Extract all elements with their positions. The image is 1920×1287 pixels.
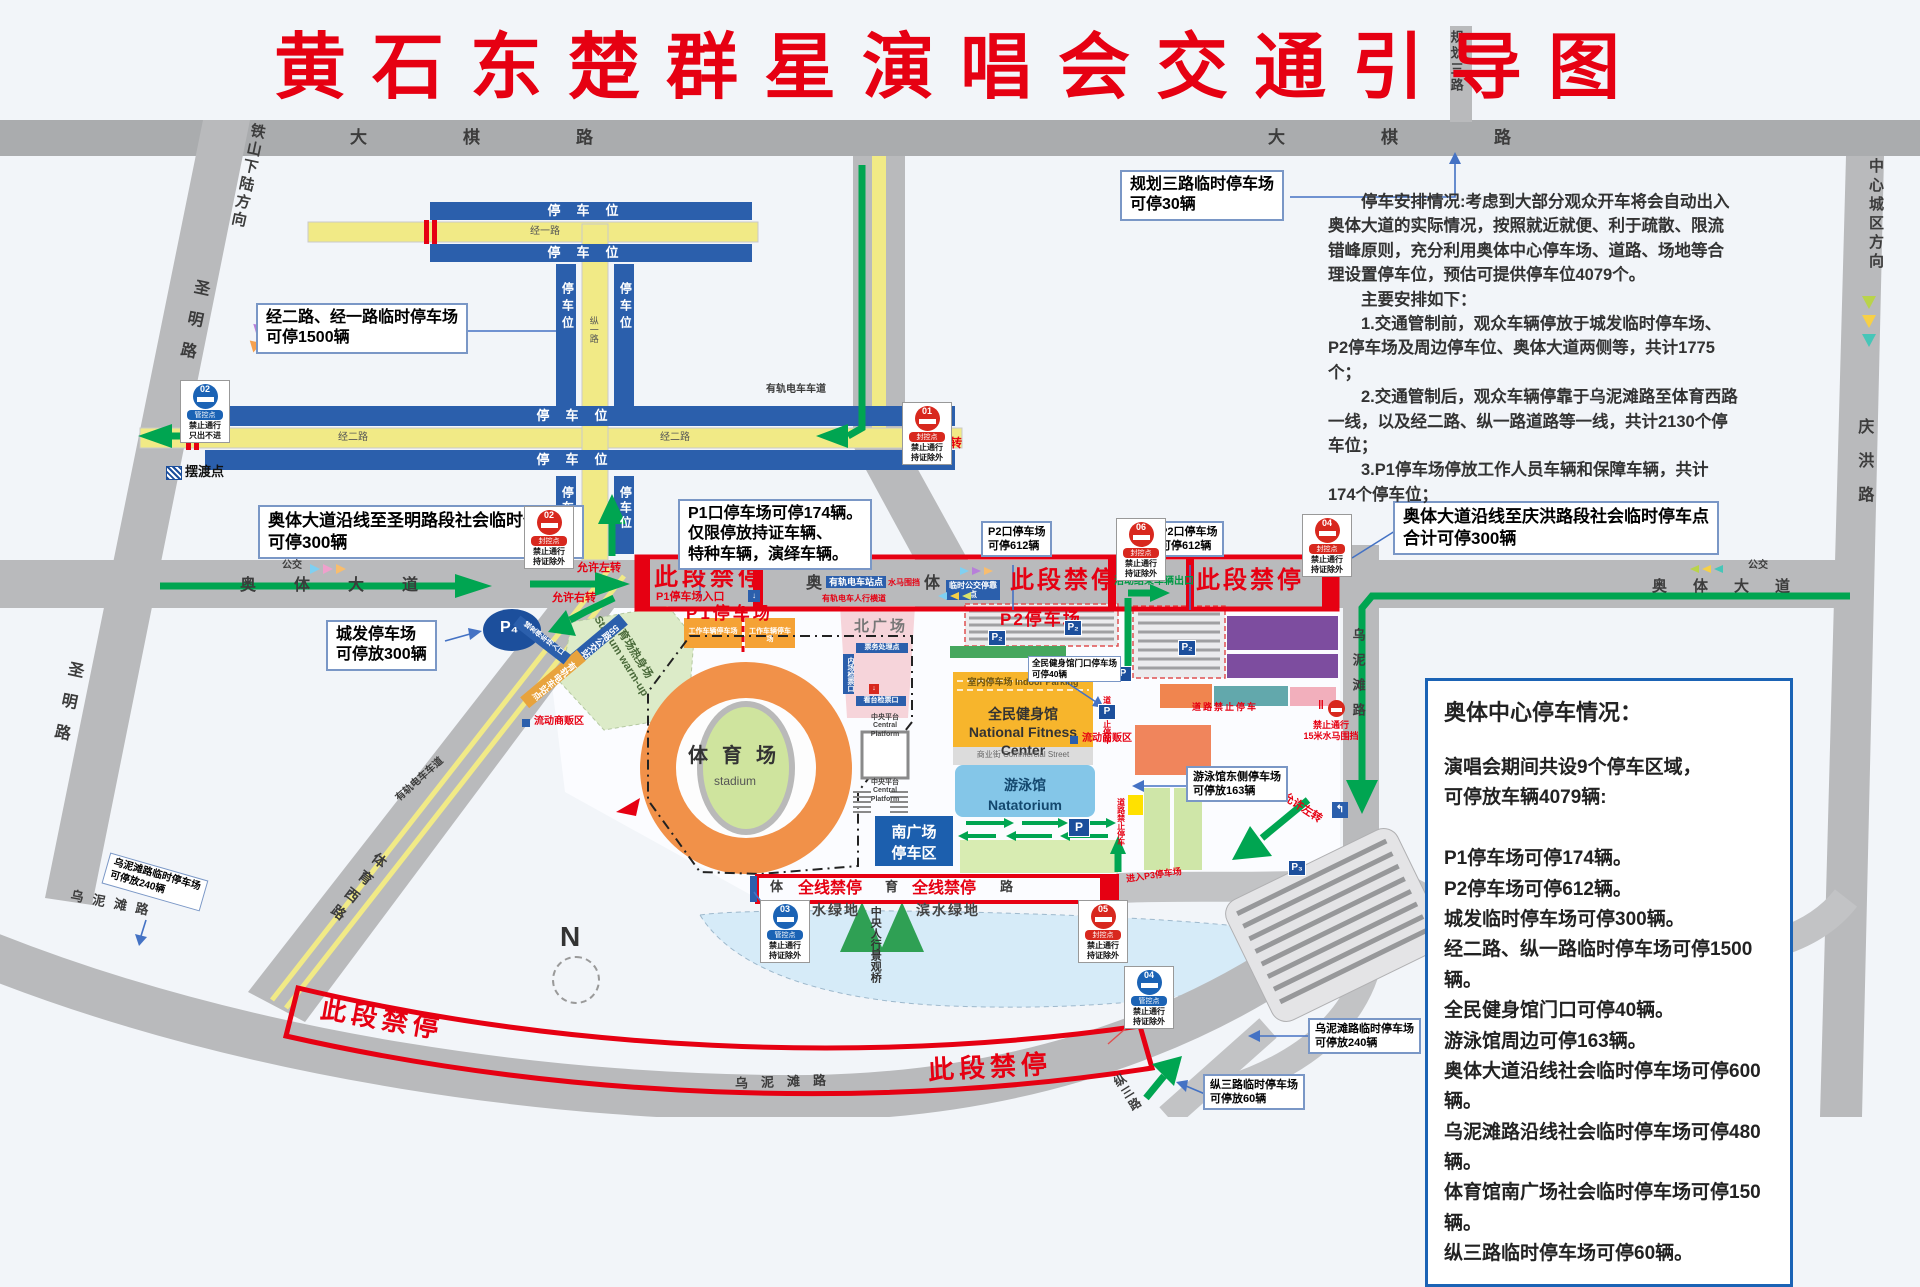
parking-bar-label-6: 停车位 xyxy=(205,452,955,468)
p2-badge-3: P₂ xyxy=(1178,640,1196,656)
p2-badge-2: P₂ xyxy=(1064,620,1082,636)
ticket-tag-1: 票务处理点 xyxy=(856,643,908,653)
road-daqi xyxy=(0,120,1920,156)
no-entry-icon: 06 xyxy=(1129,522,1154,547)
green-block-1 xyxy=(1144,788,1170,870)
checkpoint-sign-02-blue: 02 管控点 禁止通行 只出不进 xyxy=(180,380,230,443)
water-barrier-label: 水马围挡 xyxy=(888,578,920,588)
no-entry-icon: 04 xyxy=(1137,970,1162,995)
parking-summary-body: 演唱会期间共设9个停车区域， 可停放车辆4079辆: P1停车场可停174辆。 … xyxy=(1444,753,1774,1270)
parking-bar-label-1: 停车位 xyxy=(430,203,752,219)
no-entry-icon: 01 xyxy=(915,406,940,431)
checkpoint-sign-06: 06 封控点 禁止通行 持证除外 xyxy=(1116,518,1166,581)
callout-p1: P1口停车场可停174辆。 仅限停放持证车辆、 特种车辆，演绎车辆。 xyxy=(678,499,872,570)
road-char-ti: 体 xyxy=(924,574,940,593)
no-entry-icon: 02 xyxy=(193,384,218,409)
barrier-15m-label: 禁止通行 15米水马围挡 xyxy=(1296,720,1366,742)
banner-text-cd-5: 此段禁停 xyxy=(927,1049,1052,1087)
shuttle-point-label: 摆渡点 xyxy=(185,464,224,480)
compass-circle xyxy=(552,956,600,1004)
direction-arrows-city xyxy=(1862,296,1876,347)
banner-text-qx-1: 全线禁停 xyxy=(798,879,862,898)
left-turn-label-1: 允许左转 xyxy=(577,562,621,575)
central-platform-label-1: 中央平台 Central Platform xyxy=(862,714,908,739)
parking-bar-label-3: 停车位 xyxy=(560,282,574,333)
p-badge-1: P xyxy=(1098,704,1116,720)
parking-summary-title: 奥体中心停车情况： xyxy=(1444,695,1774,727)
ticket-tag-2: 内场检票口 xyxy=(843,654,854,694)
no-entry-icon: 03 xyxy=(773,904,798,929)
checkpoint-sign-02-red: 02 封控点 禁止通行 持证除外 xyxy=(524,506,574,569)
no-park-label-1: 道路禁止停车 xyxy=(1192,702,1258,713)
road-label-jinger-1: 经二路 xyxy=(338,432,368,444)
traffic-guide-map: 黄石东楚群星演唱会交通引导图 大棋路 大棋路 规划三路 铁山下陆方向 圣明路 圣… xyxy=(0,0,1920,1117)
stadium-field xyxy=(700,704,792,832)
no-entry-icon: 02 xyxy=(537,510,562,535)
bus-label-east: 公交 xyxy=(1748,560,1768,572)
p1-entrance-icon: ↓ xyxy=(748,590,760,602)
p1-lot-label: P1停车场 xyxy=(686,604,773,624)
p2-badge-1: P₂ xyxy=(988,630,1006,646)
tram-lane-label-1: 有轨电车车道 xyxy=(766,384,826,396)
parking-bar-label-5: 停车位 xyxy=(205,408,955,424)
stadium-label: 体育场 xyxy=(688,744,790,768)
vendor-label-1: 流动商贩区 xyxy=(534,716,584,728)
checkpoint-sign-04-red: 04 封控点 禁止通行 持证除外 xyxy=(1302,514,1352,577)
road-label-jingyi: 经一路 xyxy=(530,226,560,238)
purple-block-1 xyxy=(1227,616,1338,650)
compass-n: N xyxy=(560,920,580,954)
bus-arrows-east xyxy=(1690,565,1723,573)
callout-chengfa: 城发停车场 可停放300辆 xyxy=(326,620,437,671)
road-label-daqi-right: 大棋路 xyxy=(1268,128,1607,148)
road-label-jinger-2: 经二路 xyxy=(660,432,690,444)
no-entry-icon: 05 xyxy=(1091,904,1116,929)
checkpoint-sign-04-blue: 04 管控点 禁止通行 持证除外 xyxy=(1124,966,1174,1029)
checkpoint-sign-01: 01 封控点 禁止通行 持证除外 xyxy=(902,402,952,465)
yellow-block xyxy=(1128,795,1143,815)
callout-jinger: 经二路、经一路临时停车场 可停1500辆 xyxy=(256,303,468,354)
road-shengming xyxy=(45,120,250,905)
stadium-label-en: stadium xyxy=(714,774,756,788)
checkpoint-sign-05: 05 封控点 禁止通行 持证除外 xyxy=(1078,900,1128,963)
central-platform-label-2: 中央平台 Central Platform xyxy=(862,779,908,804)
callout-wunitan-right: 乌泥滩路临时停车场 可停放240辆 xyxy=(1308,1018,1421,1054)
no-entry-icon: 04 xyxy=(1315,518,1340,543)
bridge-label: 中央人行景观桥 xyxy=(868,906,881,983)
north-plaza-label: 北广场 xyxy=(854,618,908,636)
work-lot-label-1: 工作车辆停车场 xyxy=(686,628,740,636)
bus-arrows-west xyxy=(310,564,346,574)
banner-text-qx-2: 全线禁停 xyxy=(912,879,976,898)
purple-block-2 xyxy=(1227,654,1338,678)
banner-text-cd-3: 此段禁停 xyxy=(1196,567,1304,596)
south-green-zone xyxy=(960,840,1118,873)
right-turn-label-1: 允许右转 xyxy=(552,592,596,605)
bus-arrows-banner-left xyxy=(938,592,971,600)
vendor-icon-2 xyxy=(1070,736,1078,744)
banner-p1-entrance: P1停车场入口 xyxy=(656,591,724,604)
no-park-label-3: 道路禁止停车 xyxy=(1116,798,1126,846)
callout-qinghong: 奥体大道沿线至庆洪路段社会临时停车点 合计可停300辆 xyxy=(1393,501,1719,555)
road-label-city-center: 中心城区方向 xyxy=(1866,158,1884,272)
commercial-street-label: 商业街 Commercial Street xyxy=(953,750,1093,760)
callout-youyong: 游泳馆东侧停车场 可停放163辆 xyxy=(1186,766,1288,802)
left-turn-sign-icon: ↰ xyxy=(1332,802,1348,818)
p-badge-3: P xyxy=(1068,818,1090,837)
road-label-daqi-left: 大棋路 xyxy=(350,128,689,148)
page-title: 黄石东楚群星演唱会交通引导图 xyxy=(0,8,1920,113)
south-plaza-label: 南广场 停车区 xyxy=(877,822,951,864)
ticket-gate-icon: ↓ xyxy=(869,684,879,694)
road-zongyi xyxy=(582,224,608,560)
callout-p2-a: P2口停车场 可停612辆 xyxy=(981,521,1052,557)
banner-text-cd-2: 此段禁停 xyxy=(1010,567,1118,596)
tram-crossing-label: 有轨电车人行横道 xyxy=(822,594,886,604)
road-label-aoti-east: 奥体大道 xyxy=(1652,578,1816,596)
road-vertical-east-stripe xyxy=(872,156,886,446)
parking-bar-label-8: 停车位 xyxy=(618,486,632,531)
road-label-wunitan-vertical: 乌泥滩路 xyxy=(1350,628,1366,728)
vendor-label-2: 流动商贩区 xyxy=(1082,733,1132,745)
parking-summary-box: 奥体中心停车情况： 演唱会期间共设9个停车区域， 可停放车辆4079辆: P1停… xyxy=(1425,678,1793,1287)
road-label-aoti-west: 奥体大道 xyxy=(240,576,456,595)
road-label-zongyi: 纵一路 xyxy=(588,316,599,343)
parking-bar-label-4: 停车位 xyxy=(618,282,632,333)
ticket-tag-3: 看台检票口 xyxy=(856,696,906,706)
shuttle-point-icon xyxy=(166,466,182,480)
parking-arrangement-panel: 停车安排情况:考虑到大部分观众开车将会自动出入 奥体大道的实际情况，按照就近就便… xyxy=(1328,190,1788,507)
checkpoint-sign-03: 03 管控点 禁止通行 持证除外 xyxy=(760,900,810,963)
bus-arrows-banner-right xyxy=(960,567,993,575)
work-lot-label-2: 工作车辆停车场 xyxy=(746,628,794,645)
barrier-bars-icon: ‖ xyxy=(1318,698,1324,712)
parking-bar-label-2: 停车位 xyxy=(430,245,752,261)
road-label-qinghong: 庆洪路 xyxy=(1854,418,1873,520)
waterside-label-2: 滨水绿地 xyxy=(916,902,980,919)
road-char-ao: 奥 xyxy=(806,574,822,593)
bus-label-west: 公交 xyxy=(282,560,302,572)
no-entry-icon-small xyxy=(1328,700,1345,717)
tram-station-tag: 有轨电车站点 xyxy=(826,576,886,588)
callout-guihua: 规划三路临时停车场 可停30辆 xyxy=(1120,170,1284,221)
p3-badge: P₃ xyxy=(1288,860,1306,876)
callout-jianshen: 全民健身馆门口停车场 可停40辆 xyxy=(1028,656,1121,682)
vendor-icon-1 xyxy=(522,719,530,727)
natatorium-label: 游泳馆 Natatorium xyxy=(955,776,1095,815)
callout-zongsan: 纵三路临时停车场 可停放60辆 xyxy=(1203,1074,1305,1110)
